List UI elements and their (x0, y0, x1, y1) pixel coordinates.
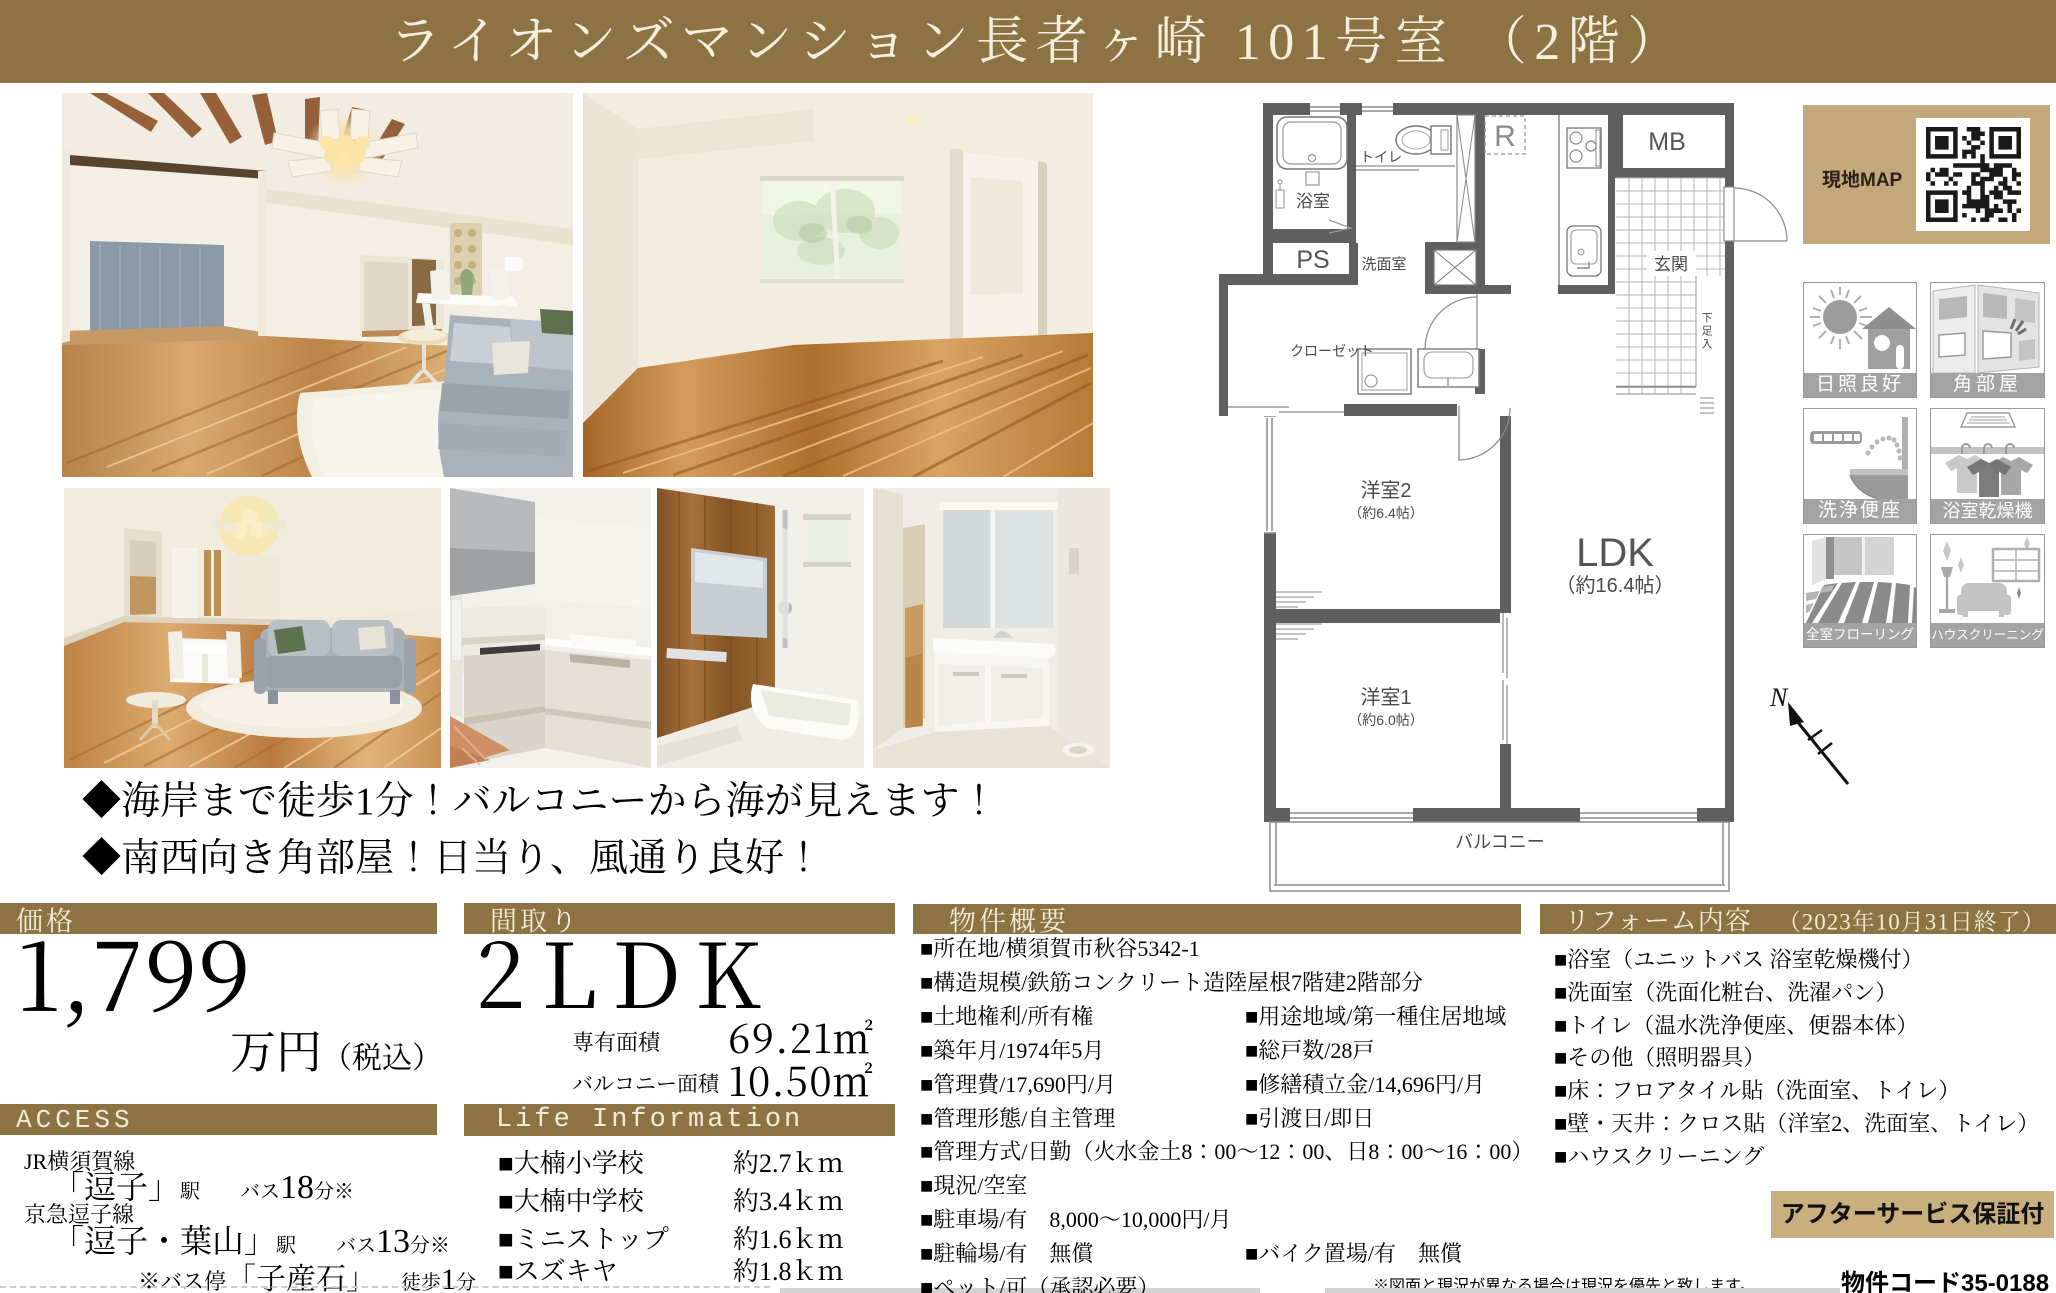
svg-text:浴室: 浴室 (1296, 192, 1330, 211)
svg-text:MB: MB (1648, 128, 1686, 156)
svg-text:LDK: LDK (1576, 531, 1654, 575)
svg-text:洗面室: 洗面室 (1361, 256, 1406, 273)
svg-text:（約6.0帖）: （約6.0帖） (1348, 712, 1423, 728)
svg-text:トイレ: トイレ (1360, 149, 1402, 165)
svg-text:クローゼット: クローゼット (1290, 343, 1374, 359)
svg-text:（約6.4帖）: （約6.4帖） (1348, 505, 1423, 521)
svg-text:N: N (1769, 683, 1789, 712)
svg-text:R: R (1494, 120, 1516, 153)
svg-text:洋室2: 洋室2 (1360, 479, 1411, 502)
svg-text:玄関: 玄関 (1654, 255, 1688, 274)
svg-text:PS: PS (1296, 246, 1329, 274)
svg-text:下足入: 下足入 (1700, 312, 1713, 351)
svg-text:バルコニー: バルコニー (1455, 832, 1545, 852)
svg-text:（約16.4帖）: （約16.4帖） (1556, 574, 1675, 597)
svg-text:洋室1: 洋室1 (1360, 686, 1411, 709)
